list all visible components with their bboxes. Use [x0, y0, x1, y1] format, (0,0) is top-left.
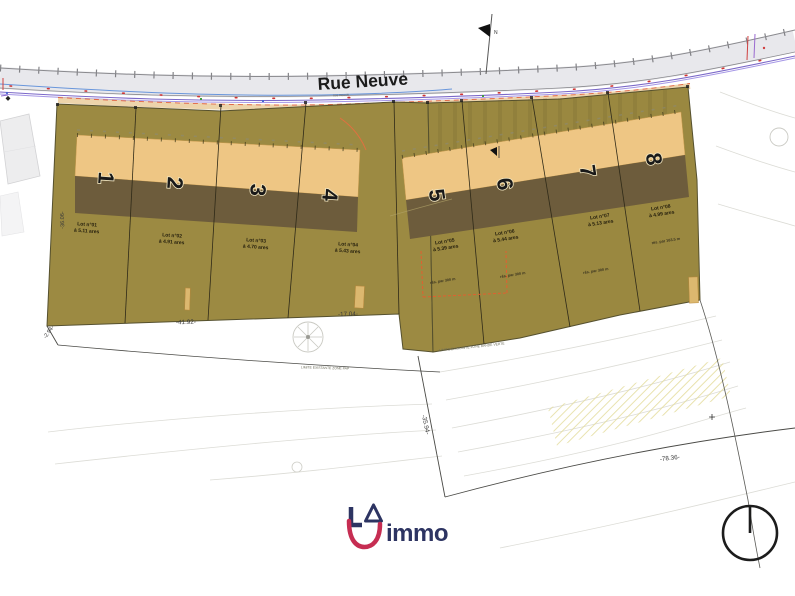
site-plan-canvas: Rue Neuve rue neuve N — [0, 0, 795, 596]
lot-2-number: 2 — [162, 176, 188, 190]
dimension-front-left: -41.92- — [176, 319, 196, 327]
lot-4-label: Lot n°04à 5.43 ares — [335, 241, 362, 255]
dimension-side-left: -36.06- — [60, 211, 67, 229]
lot-3-label: Lot n°03à 4.70 ares — [243, 237, 270, 251]
lot-1-label: Lot n°01à 5.11 ares — [74, 221, 100, 235]
dimension-front-right: -17.04- — [338, 311, 358, 319]
logo-wordmark: immo — [386, 520, 448, 547]
lot-2-label: Lot n°02à 4.91 ares — [159, 232, 186, 246]
site-plan: Rue Neuve rue neuve N — [0, 0, 795, 596]
lot-3-number: 3 — [245, 183, 271, 197]
lot-1-number: 1 — [93, 171, 119, 185]
tree-symbol — [293, 322, 323, 352]
road-name-small-label: rue neuve — [333, 93, 349, 98]
north-label: N — [494, 30, 498, 36]
